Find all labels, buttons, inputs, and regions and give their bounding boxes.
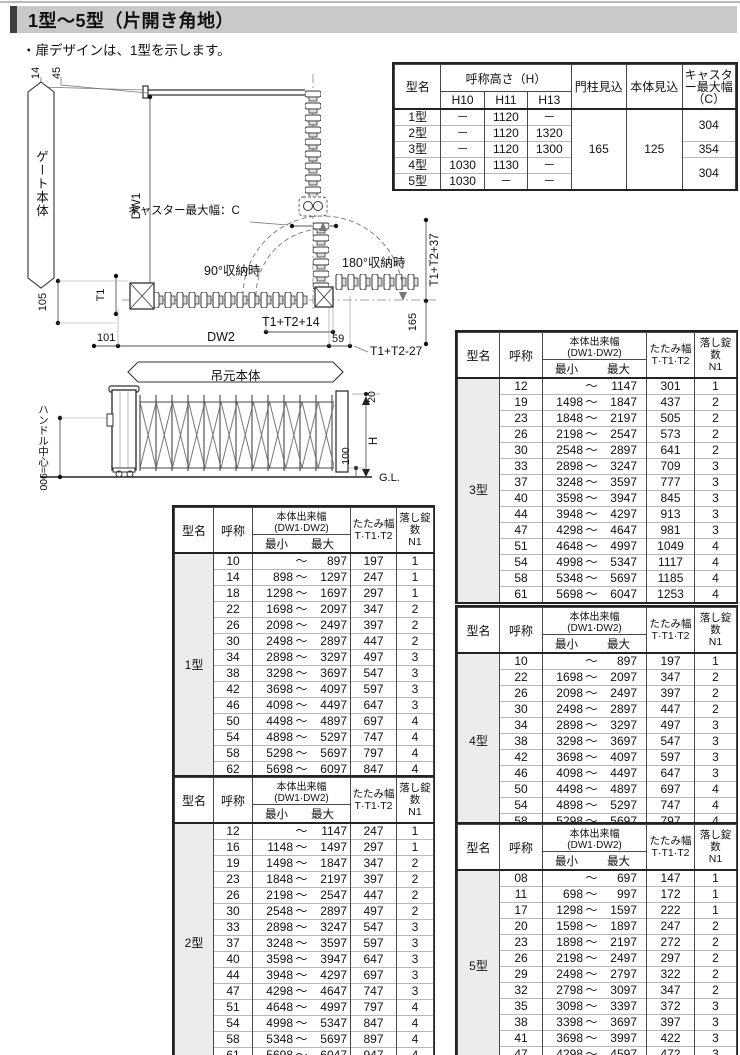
max-width-value: 5697 [600,571,637,586]
spec-row: 191498～18473472 [175,856,434,872]
fold-width-cell: 397 [647,1015,695,1031]
size-code-cell: 51 [500,539,543,555]
min-width-value: 2798 [543,983,583,998]
max-width-value: 5297 [310,730,347,745]
min-width-value: 1698 [253,602,293,617]
spec-row: 464098～44976473 [175,698,434,714]
lock-count-cell: 4 [695,798,737,814]
lock-count-cell: 2 [397,888,434,904]
dim-101: 101 [97,332,115,344]
lock-count-cell: 3 [397,952,434,968]
fold-width-cell: 777 [647,475,695,491]
width-range-cell: ～1147 [543,378,647,395]
h11-cell: － [484,174,527,190]
width-range-cell: 1598～1897 [543,919,647,935]
model-name-cell: 5型 [458,870,500,1055]
size-code-cell: 26 [500,951,543,967]
max-width-value: 4497 [600,766,637,781]
spec-table-header: 型名 呼称 本体出来幅(DW1·DW2) たたみ幅 T·T1·T2 落し錠数 N… [175,508,434,554]
min-width-value: 3298 [543,734,583,749]
lock-count-cell: 3 [695,999,737,1015]
size-code-cell: 10 [214,553,253,570]
max-width-value: 3697 [600,734,637,749]
tilde: ～ [583,670,600,685]
tilde: ～ [583,587,600,602]
col-caster: キャスター最大幅（C） [682,65,736,110]
tilde: ～ [293,1048,310,1055]
caster-value-cell: 304 [682,109,736,142]
fold-width-cell: 247 [351,570,397,586]
size-code-cell: 47 [214,984,253,1000]
tilde: ～ [583,1015,600,1030]
max-width-value: 2497 [310,618,347,633]
tilde: ～ [293,840,310,855]
dim-20: 20 [366,391,378,403]
dim-100: 100 [340,447,352,465]
h13-cell: 1320 [528,126,571,142]
tilde: ～ [293,666,310,681]
max-width-value: 4297 [310,968,347,983]
h11-cell: 1130 [484,158,527,174]
type5-table: 型名 呼称 本体出来幅(DW1·DW2) たたみ幅 T·T1·T2 落し錠数 N… [457,824,737,1055]
col-height-group: 呼称高さ（H） [441,65,571,92]
width-range-cell: 4298～4647 [543,523,647,539]
size-code-cell: 54 [214,730,253,746]
lock-count-cell: 2 [695,967,737,983]
size-code-cell: 42 [214,682,253,698]
max-width-value: 2497 [600,686,637,701]
width-range-cell: 3598～3947 [543,491,647,507]
spec-row: 544898～52977474 [458,798,737,814]
spec-row: 262198～25475732 [458,427,737,443]
fold-width-cell: 697 [351,714,397,730]
col-h11: H11 [484,92,527,110]
width-range-cell: 3698～3997 [543,1031,647,1047]
size-code-cell: 19 [214,856,253,872]
max-width-value: 1147 [310,824,347,839]
tilde: ～ [583,798,600,813]
width-range-cell: 4648～4997 [543,539,647,555]
fold-width-cell: 547 [351,920,397,936]
lock-count-cell: 3 [397,666,434,682]
spec-row: 615698～604712534 [458,587,737,603]
fold-width-cell: 297 [351,586,397,602]
spec-row: 585348～569711854 [458,571,737,587]
fold-width-cell: 709 [647,459,695,475]
lock-count-cell: 3 [695,1031,737,1047]
tilde: ～ [583,571,600,586]
lock-count-cell: 1 [695,887,737,903]
min-width-value: 3398 [543,1015,583,1030]
tilde: ～ [293,888,310,903]
lock-count-cell: 3 [695,734,737,750]
max-width-value: 2897 [600,443,637,458]
min-width-value: 2198 [543,951,583,966]
spec-row: 383398～36973973 [458,1015,737,1031]
tilde: ～ [293,904,310,919]
max-width-value: 2897 [310,634,347,649]
col-width: 本体出来幅(DW1·DW2) [543,608,647,635]
spec-row: 11698～9971721 [458,887,737,903]
spec-row: 423698～40975973 [175,682,434,698]
min-width-value: 3698 [543,750,583,765]
spec-row: 373248～35977773 [458,475,737,491]
min-width-value: 3948 [253,968,293,983]
spec-row: 262198～25474472 [175,888,434,904]
tilde: ～ [583,766,600,781]
size-code-cell: 10 [500,653,543,670]
size-code-cell: 29 [500,967,543,983]
size-code-cell: 40 [214,952,253,968]
size-code-cell: 32 [500,983,543,999]
size-code-cell: 44 [214,968,253,984]
tilde: ～ [293,682,310,697]
fold-width-cell: 1117 [647,555,695,571]
width-range-cell: 2098～2497 [543,686,647,702]
size-code-cell: 33 [500,459,543,475]
min-width-value: 1698 [543,670,583,685]
spec-row: 332898～32477093 [458,459,737,475]
size-code-cell: 30 [500,443,543,459]
spec-row: 423698～40975973 [458,750,737,766]
fold-width-cell: 797 [351,1000,397,1016]
min-width-value: 2198 [253,888,293,903]
lock-count-cell: 4 [397,714,434,730]
min-width-value: 4898 [253,730,293,745]
lock-count-cell: 4 [695,782,737,798]
tilde: ～ [583,887,600,902]
col-width: 本体出来幅(DW1·DW2) [543,333,647,360]
width-range-cell: ～897 [253,553,351,570]
tilde: ～ [293,984,310,999]
drawing-svg: 14 45 DW1 T1 105 T1+T2+37 165 T1+T2+14 1… [16,56,452,506]
max-width-value: 2797 [600,967,637,982]
max-width-value: 4497 [310,698,347,713]
min-width-value: 4298 [543,523,583,538]
tilde: ～ [583,903,600,918]
lock-count-cell: 3 [695,766,737,782]
dim-59: 59 [332,333,344,345]
min-width-value: 3298 [253,666,293,681]
max-width-value: 897 [310,554,347,569]
max-width-value: 1597 [600,903,637,918]
tilde: ～ [583,999,600,1014]
lock-count-cell: 3 [397,968,434,984]
max-width-value: 2097 [310,602,347,617]
min-width-value: 2548 [253,904,293,919]
max-width-value: 1847 [310,856,347,871]
width-range-cell: 4498～4897 [543,782,647,798]
min-width-value: 4998 [253,1016,293,1031]
max-width-value: 2497 [600,951,637,966]
min-width-value: 1498 [543,395,583,410]
fold-width-cell: 447 [351,888,397,904]
tilde: ～ [293,746,310,761]
size-code-cell: 41 [500,1031,543,1047]
col-pillar: 門柱見込 [571,65,626,110]
width-range-cell: 3948～4297 [543,507,647,523]
min-width-value: 4648 [543,539,583,554]
lock-count-cell: 3 [695,523,737,539]
fold-width-cell: 573 [647,427,695,443]
size-code-cell: 18 [214,586,253,602]
lock-count-cell: 1 [695,378,737,395]
max-width-value: 4647 [600,523,637,538]
width-range-cell: 2898～3297 [253,650,351,666]
spec-row: 585348～56978974 [175,1032,434,1048]
spec-row: 201598～18972472 [458,919,737,935]
spec-row: 302498～28974472 [458,702,737,718]
max-width-value: 1297 [310,570,347,585]
lock-count-cell: 1 [397,840,434,856]
h13-cell: － [528,174,571,190]
width-range-cell: 1148～1497 [253,840,351,856]
fold-width-cell: 697 [351,968,397,984]
max-width-value: 3247 [600,459,637,474]
tilde: ～ [293,936,310,951]
spec-row: 443948～42979133 [458,507,737,523]
lock-count-cell: 3 [695,507,737,523]
fold-width-cell: 797 [351,746,397,762]
width-range-cell: ～697 [543,870,647,887]
min-width-value: 4298 [543,1047,583,1055]
width-range-cell: 1698～2097 [253,602,351,618]
tilde: ～ [583,782,600,797]
min-width-value: 4498 [543,782,583,797]
lock-count-cell: 2 [397,872,434,888]
spec-table-header: 型名 呼称 本体出来幅(DW1·DW2) たたみ幅 T·T1·T2 落し錠数 N… [458,333,737,379]
lock-count-cell: 3 [695,718,737,734]
fold-width-cell: 347 [351,856,397,872]
min-width-value: 2098 [543,686,583,701]
min-width-value: 2498 [543,702,583,717]
max-width-value: 5297 [600,798,637,813]
width-range-cell: 4998～5347 [253,1016,351,1032]
tilde: ～ [583,427,600,442]
max-width-value: 5697 [310,746,347,761]
min-width-value: 4098 [253,698,293,713]
tilde: ～ [293,570,310,585]
pillar-value-cell: 165 [571,109,626,189]
min-width-value: 2498 [253,634,293,649]
lock-count-cell: 4 [397,1000,434,1016]
width-range-cell: 3598～3947 [253,952,351,968]
fold-width-cell: 597 [351,936,397,952]
h13-cell: － [528,109,571,126]
spec-row: 332898～32475473 [175,920,434,936]
spec-row: 504498～48976974 [175,714,434,730]
width-range-cell: 3098～3397 [543,999,647,1015]
size-code-cell: 23 [500,411,543,427]
size-code-cell: 51 [214,1000,253,1016]
lock-count-cell: 2 [397,904,434,920]
dim-t1t2p37: T1+T2+37 [429,233,441,286]
max-width-value: 4597 [600,1047,637,1055]
width-range-cell: 3398～3697 [543,1015,647,1031]
model-name-cell: 2型 [175,823,214,1055]
width-range-cell: 5698～6047 [253,1048,351,1055]
max-width-value: 4897 [600,782,637,797]
min-width-value: 1298 [253,586,293,601]
fold-width-cell: 547 [351,666,397,682]
fold-width-cell: 947 [351,1048,397,1055]
min-width-value: 5698 [253,1048,293,1055]
fold-width-cell: 1049 [647,539,695,555]
width-range-cell: 4298～4647 [253,984,351,1000]
width-range-cell: 2198～2547 [253,888,351,904]
min-width-value: 1498 [253,856,293,871]
width-range-cell: 2898～3297 [543,718,647,734]
col-model: 型名 [458,608,500,654]
size-code-cell: 47 [500,523,543,539]
spec-row: 474298～46477473 [175,984,434,1000]
spec-table-header: 型名 呼称 本体出来幅(DW1·DW2) たたみ幅 T·T1·T2 落し錠数 N… [458,825,737,871]
width-range-cell: 4498～4897 [253,714,351,730]
spec-row: 322798～30973472 [458,983,737,999]
spec-row: 262098～24973972 [175,618,434,634]
fold-width-cell: 347 [647,670,695,686]
min-width-value: 1148 [253,840,293,855]
col-name: 呼称 [214,778,253,824]
fold-width-cell: 747 [351,984,397,1000]
size-code-cell: 26 [500,427,543,443]
spec-row: 14898～12972471 [175,570,434,586]
fold-width-cell: 297 [351,840,397,856]
col-width: 本体出来幅(DW1·DW2) [543,825,647,852]
lock-count-cell: 3 [397,650,434,666]
max-width-value: 2197 [600,411,637,426]
fold-width-cell: 697 [647,782,695,798]
fold-width-cell: 1253 [647,587,695,603]
max-width-value: 3397 [600,999,637,1014]
tilde: ～ [583,523,600,538]
dim-45: 45 [51,67,63,79]
h13-cell: 1300 [528,142,571,158]
tilde: ～ [293,1000,310,1015]
lock-count-cell: 2 [695,670,737,686]
tilde: ～ [583,967,600,982]
lock-count-cell: 2 [695,919,737,935]
size-code-cell: 50 [500,782,543,798]
min-width-value: 2898 [253,920,293,935]
fold-width-cell: 641 [647,443,695,459]
tilde: ～ [583,555,600,570]
gate-body-label: ゲート本体 [32,150,51,218]
fold-width-cell: 347 [647,983,695,999]
size-code-cell: 58 [214,746,253,762]
col-min-max: 最小最大 [253,805,351,824]
dim-14: 14 [30,67,42,79]
max-width-value: 4997 [310,1000,347,1015]
spec-row: 443948～42976973 [175,968,434,984]
min-width-value: 5348 [543,571,583,586]
fold-width-cell: 497 [351,650,397,666]
fold-width-cell: 647 [351,698,397,714]
page-title: 1型〜5型（片開き角地） [28,7,234,33]
width-range-cell: 4898～5297 [543,798,647,814]
max-width-value: 997 [600,887,637,902]
tilde: ～ [293,634,310,649]
max-width-value: 2547 [600,427,637,442]
lock-count-cell: 3 [397,936,434,952]
max-width-value: 5347 [600,555,637,570]
width-range-cell: 898～1297 [253,570,351,586]
fold-width-cell: 647 [647,766,695,782]
width-range-cell: 698～997 [543,887,647,903]
col-name: 呼称 [500,608,543,654]
spec-row: 3型12～11473011 [458,378,737,395]
tilde: ～ [293,554,310,569]
width-range-cell: 2498～2897 [543,702,647,718]
h11-cell: 1120 [484,126,527,142]
tilde: ～ [293,856,310,871]
min-width-value: 4098 [543,766,583,781]
max-width-value: 4997 [600,539,637,554]
max-width-value: 3997 [600,1031,637,1046]
tilde: ～ [583,654,600,669]
width-range-cell: 1898～2197 [543,935,647,951]
size-code-cell: 14 [214,570,253,586]
tilde: ～ [583,686,600,701]
tilde: ～ [293,602,310,617]
min-width-value: 3248 [543,475,583,490]
width-range-cell: 2798～3097 [543,983,647,999]
min-width-value: 698 [543,887,583,902]
spec-row: 514648～499710494 [458,539,737,555]
lock-count-cell: 4 [397,1016,434,1032]
col-min-max: 最小最大 [543,360,647,379]
spec-row: 221698～20973472 [458,670,737,686]
min-width-value: 898 [253,570,293,585]
min-width-value: 2098 [253,618,293,633]
lock-count-cell: 2 [695,951,737,967]
spec-row: 342898～32974973 [175,650,434,666]
spec-row: 5型08～6971471 [458,870,737,887]
tilde: ～ [583,539,600,554]
col-lock: 落し錠数 N1 [695,825,737,871]
spec-row: 544998～534711174 [458,555,737,571]
fold-width-cell: 247 [647,919,695,935]
spec-row: 231848～21975052 [458,411,737,427]
tilde: ～ [583,411,600,426]
width-range-cell: 1848～2197 [543,411,647,427]
size-code-cell: 34 [500,718,543,734]
max-width-value: 4647 [310,984,347,999]
tilde: ～ [583,702,600,717]
fold-width-cell: 422 [647,1031,695,1047]
width-range-cell: 1698～2097 [543,670,647,686]
min-width-value: 2498 [543,967,583,982]
col-name: 呼称 [214,508,253,554]
min-width-value: 3948 [543,507,583,522]
size-code-cell: 50 [214,714,253,730]
fold-width-cell: 397 [351,872,397,888]
tilde: ～ [293,872,310,887]
lock-count-cell: 2 [397,602,434,618]
fold-width-cell: 197 [647,653,695,670]
page-top-rule [0,1,740,3]
fold-width-cell: 1185 [647,571,695,587]
size-code-cell: 26 [214,618,253,634]
lock-count-cell: 2 [695,411,737,427]
max-width-value: 2897 [310,904,347,919]
size-code-cell: 17 [500,903,543,919]
spec-row: 544898～52977474 [175,730,434,746]
spec-row: 504498～48976974 [458,782,737,798]
min-width-value: 3248 [253,936,293,951]
size-code-cell: 42 [500,750,543,766]
col-min-max: 最小最大 [253,535,351,554]
